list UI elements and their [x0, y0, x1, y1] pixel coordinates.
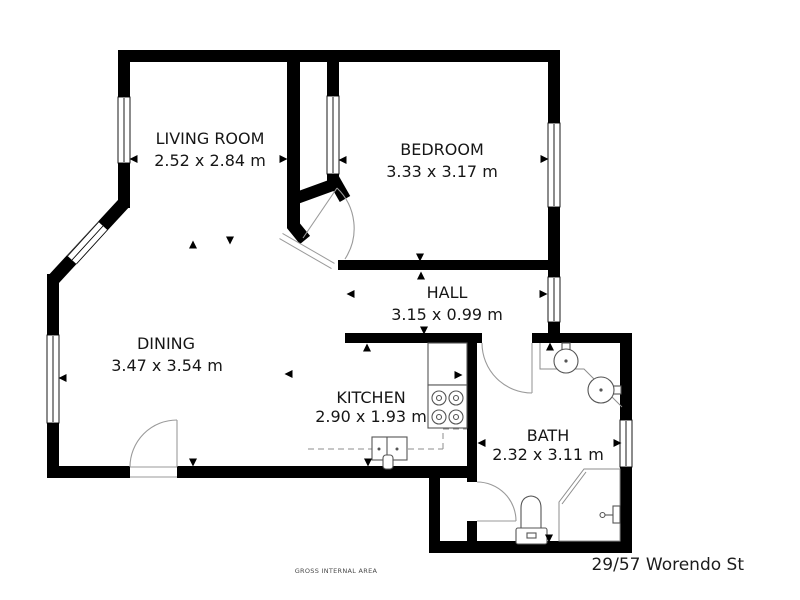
window: [548, 277, 560, 322]
room-dims-living-room: 2.52 x 2.84 m: [154, 151, 266, 170]
window: [548, 123, 560, 207]
bath-lower-door: [467, 482, 516, 521]
room-dims-dining: 3.47 x 3.54 m: [111, 356, 223, 375]
room-dims-bedroom: 3.33 x 3.17 m: [386, 162, 498, 181]
window: [118, 97, 130, 163]
room-label-bedroom: BEDROOM: [400, 140, 484, 159]
hall-threshold: [280, 233, 335, 268]
window: [620, 420, 632, 467]
room-label-living-room: LIVING ROOM: [156, 129, 265, 148]
room-label-hall: HALL: [427, 283, 468, 302]
room-label-dining: DINING: [137, 334, 195, 353]
toilet-icon: [516, 496, 547, 544]
floor-plan-drawing: LIVING ROOM 2.52 x 2.84 m BEDROOM 3.33 x…: [0, 0, 800, 600]
room-labels: LIVING ROOM 2.52 x 2.84 m BEDROOM 3.33 x…: [111, 129, 604, 464]
kitchen-sink-icon: [372, 437, 407, 469]
window-diagonal: [68, 222, 108, 264]
stove-icon: [428, 343, 467, 428]
room-dims-kitchen: 2.90 x 1.93 m: [315, 407, 427, 426]
room-dims-hall: 3.15 x 0.99 m: [391, 305, 503, 324]
basin-icon: [554, 343, 578, 373]
gross-internal-area-note: GROSS INTERNAL AREA: [295, 567, 378, 575]
bath-door: [482, 333, 532, 393]
window: [47, 335, 59, 423]
room-label-kitchen: KITCHEN: [336, 388, 405, 407]
entry-door: [130, 420, 177, 478]
room-dims-bath: 2.32 x 3.11 m: [492, 445, 604, 464]
window: [327, 96, 339, 174]
property-address: 29/57 Worendo St: [591, 555, 744, 575]
shower-icon: [559, 469, 620, 541]
room-label-bath: BATH: [527, 426, 569, 445]
floor-plan-page: LIVING ROOM 2.52 x 2.84 m BEDROOM 3.33 x…: [0, 0, 800, 600]
basin-icon: [588, 377, 621, 403]
